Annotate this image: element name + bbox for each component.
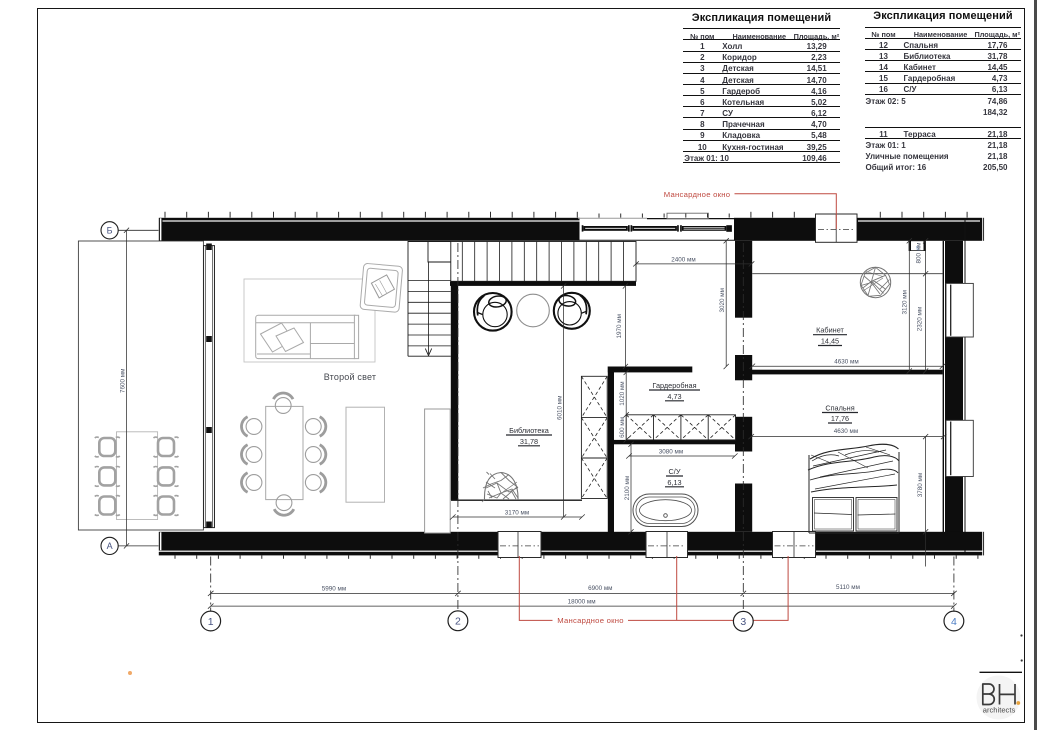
svg-text:6900 мм: 6900 мм (588, 585, 612, 592)
svg-text:5990 мм: 5990 мм (322, 586, 346, 593)
svg-text:2100 мм: 2100 мм (624, 476, 631, 500)
svg-text:Б: Б (107, 226, 113, 236)
svg-text:Библиотека: Библиотека (509, 426, 550, 435)
svg-text:Кабинет: Кабинет (816, 326, 844, 335)
svg-text:17,76: 17,76 (831, 414, 849, 423)
svg-text:2320 мм: 2320 мм (916, 307, 923, 331)
svg-text:3780 мм: 3780 мм (917, 473, 924, 497)
svg-text:С/У: С/У (669, 467, 681, 476)
svg-text:2: 2 (455, 616, 461, 628)
svg-text:Спальня: Спальня (825, 404, 854, 413)
svg-text:4: 4 (951, 616, 957, 628)
svg-text:4,73: 4,73 (667, 392, 681, 401)
svg-text:3020 мм: 3020 мм (719, 288, 726, 312)
svg-text:2400 мм: 2400 мм (671, 256, 695, 263)
svg-text:4630 мм: 4630 мм (834, 428, 858, 435)
svg-text:3120 мм: 3120 мм (901, 290, 908, 314)
svg-text:А: А (107, 541, 113, 551)
svg-text:31,78: 31,78 (520, 437, 538, 446)
svg-text:1020 мм: 1020 мм (619, 381, 626, 405)
svg-text:3: 3 (740, 616, 746, 628)
svg-text:Гардеробная: Гардеробная (652, 381, 696, 390)
svg-text:6010 мм: 6010 мм (557, 396, 564, 420)
svg-text:5110 мм: 5110 мм (836, 584, 860, 591)
svg-text:3170 мм: 3170 мм (505, 509, 529, 516)
svg-text:6,13: 6,13 (667, 478, 681, 487)
svg-text:4630 мм: 4630 мм (834, 359, 858, 366)
svg-text:14,45: 14,45 (821, 337, 839, 346)
svg-text:Мансардное окно: Мансардное окно (664, 190, 731, 199)
svg-text:1: 1 (208, 616, 214, 628)
svg-text:architects: architects (983, 706, 1016, 715)
svg-text:1970 мм: 1970 мм (616, 314, 623, 338)
svg-text:7600 мм: 7600 мм (120, 369, 127, 393)
svg-text:Второй свет: Второй свет (324, 372, 376, 382)
svg-text:800 мм: 800 мм (915, 243, 922, 264)
svg-text:18000 мм: 18000 мм (568, 598, 596, 605)
svg-text:3080 мм: 3080 мм (659, 448, 683, 455)
svg-text:Мансардное окно: Мансардное окно (557, 616, 624, 625)
svg-text:600 мм: 600 мм (619, 417, 626, 438)
